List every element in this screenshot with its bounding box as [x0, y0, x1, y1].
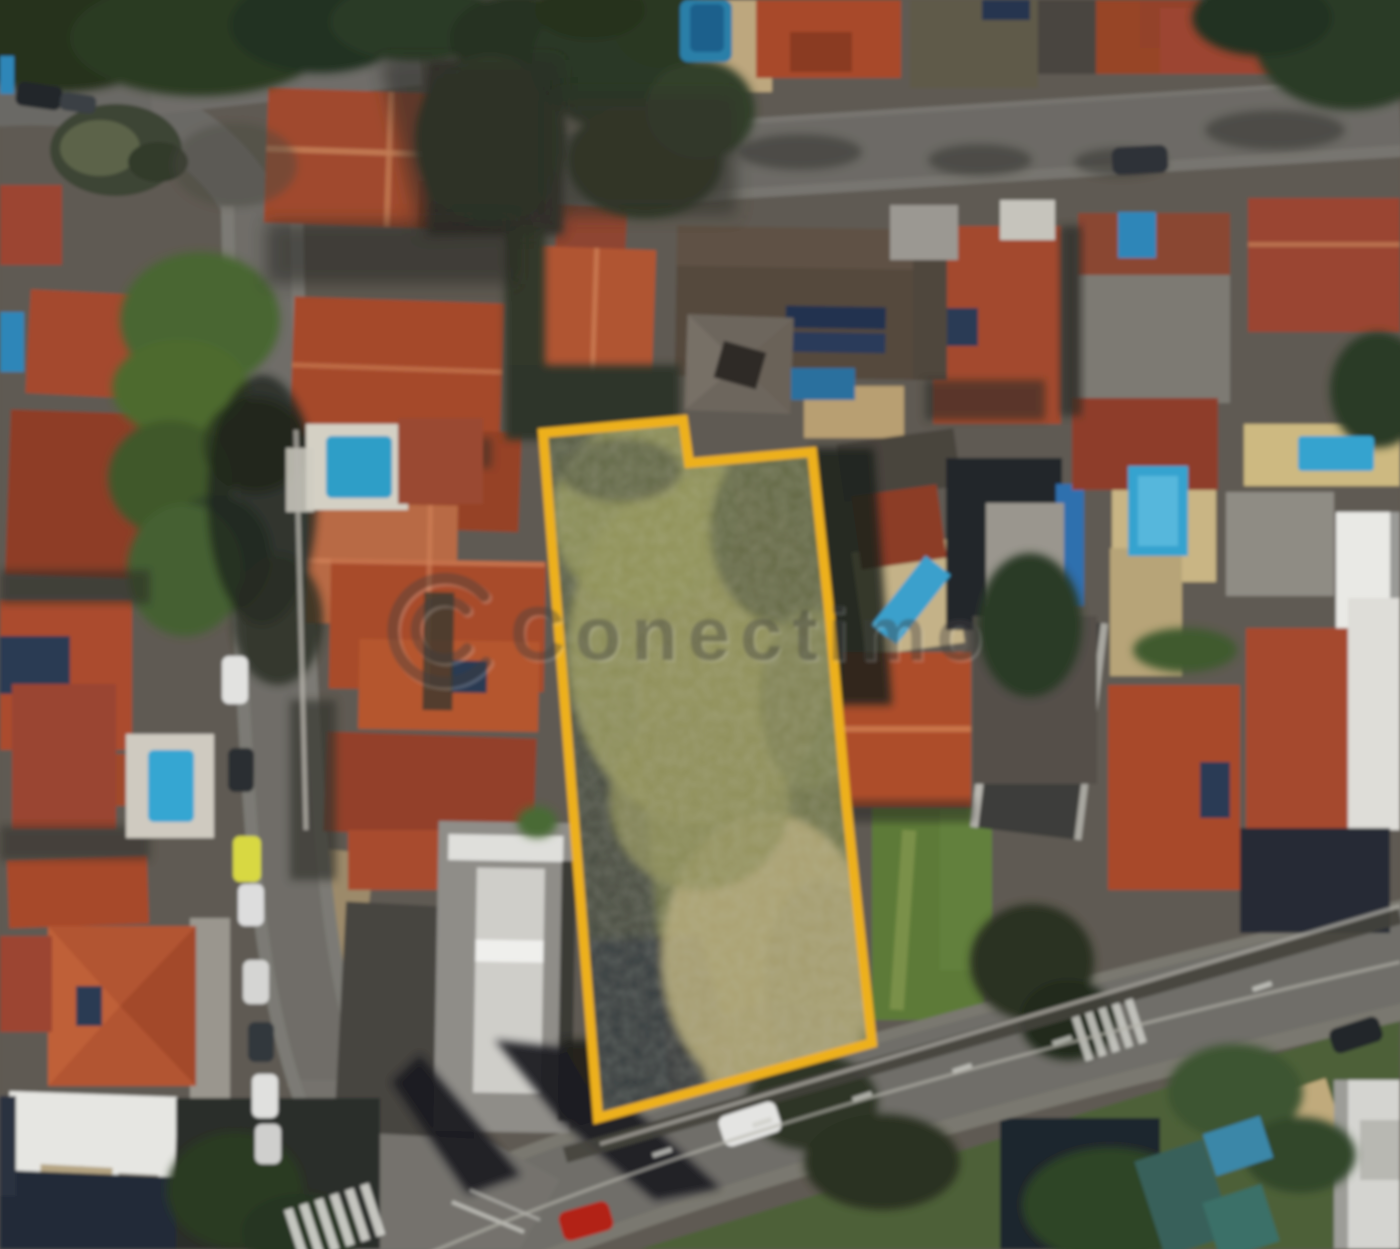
svg-text:Conectimo: Conectimo [510, 592, 993, 677]
